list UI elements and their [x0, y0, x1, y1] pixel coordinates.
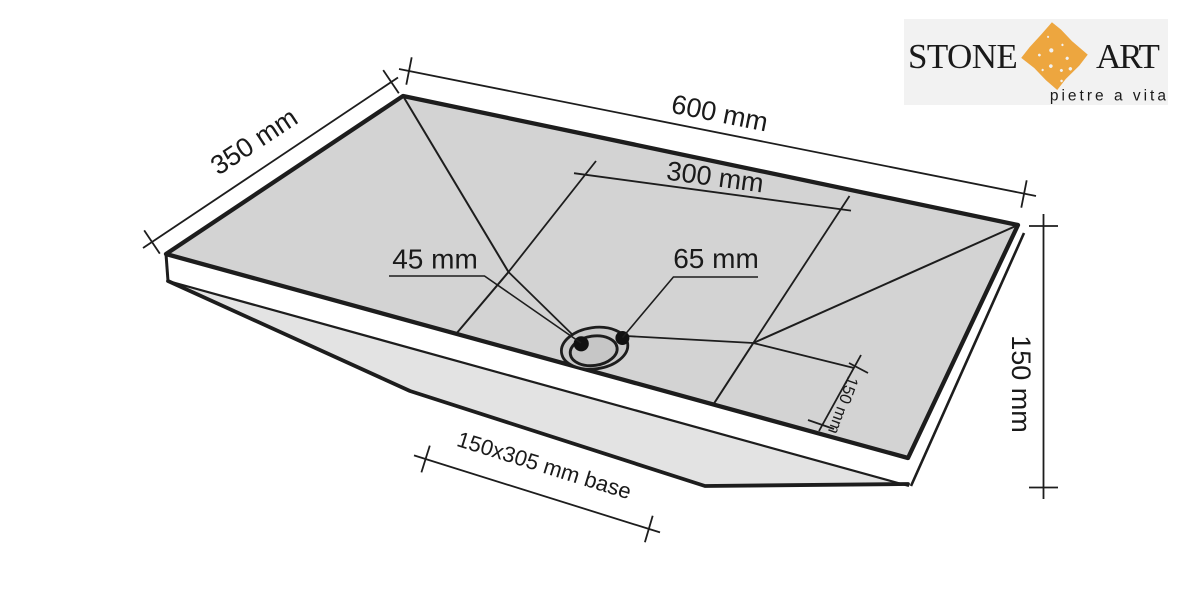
svg-text:150 mm: 150 mm	[1006, 335, 1036, 433]
svg-text:45 mm: 45 mm	[392, 244, 478, 275]
svg-text:STONE: STONE	[908, 37, 1017, 76]
svg-text:ART: ART	[1096, 37, 1160, 76]
svg-text:pietre a vita: pietre a vita	[1050, 88, 1169, 105]
svg-text:65 mm: 65 mm	[673, 243, 759, 274]
